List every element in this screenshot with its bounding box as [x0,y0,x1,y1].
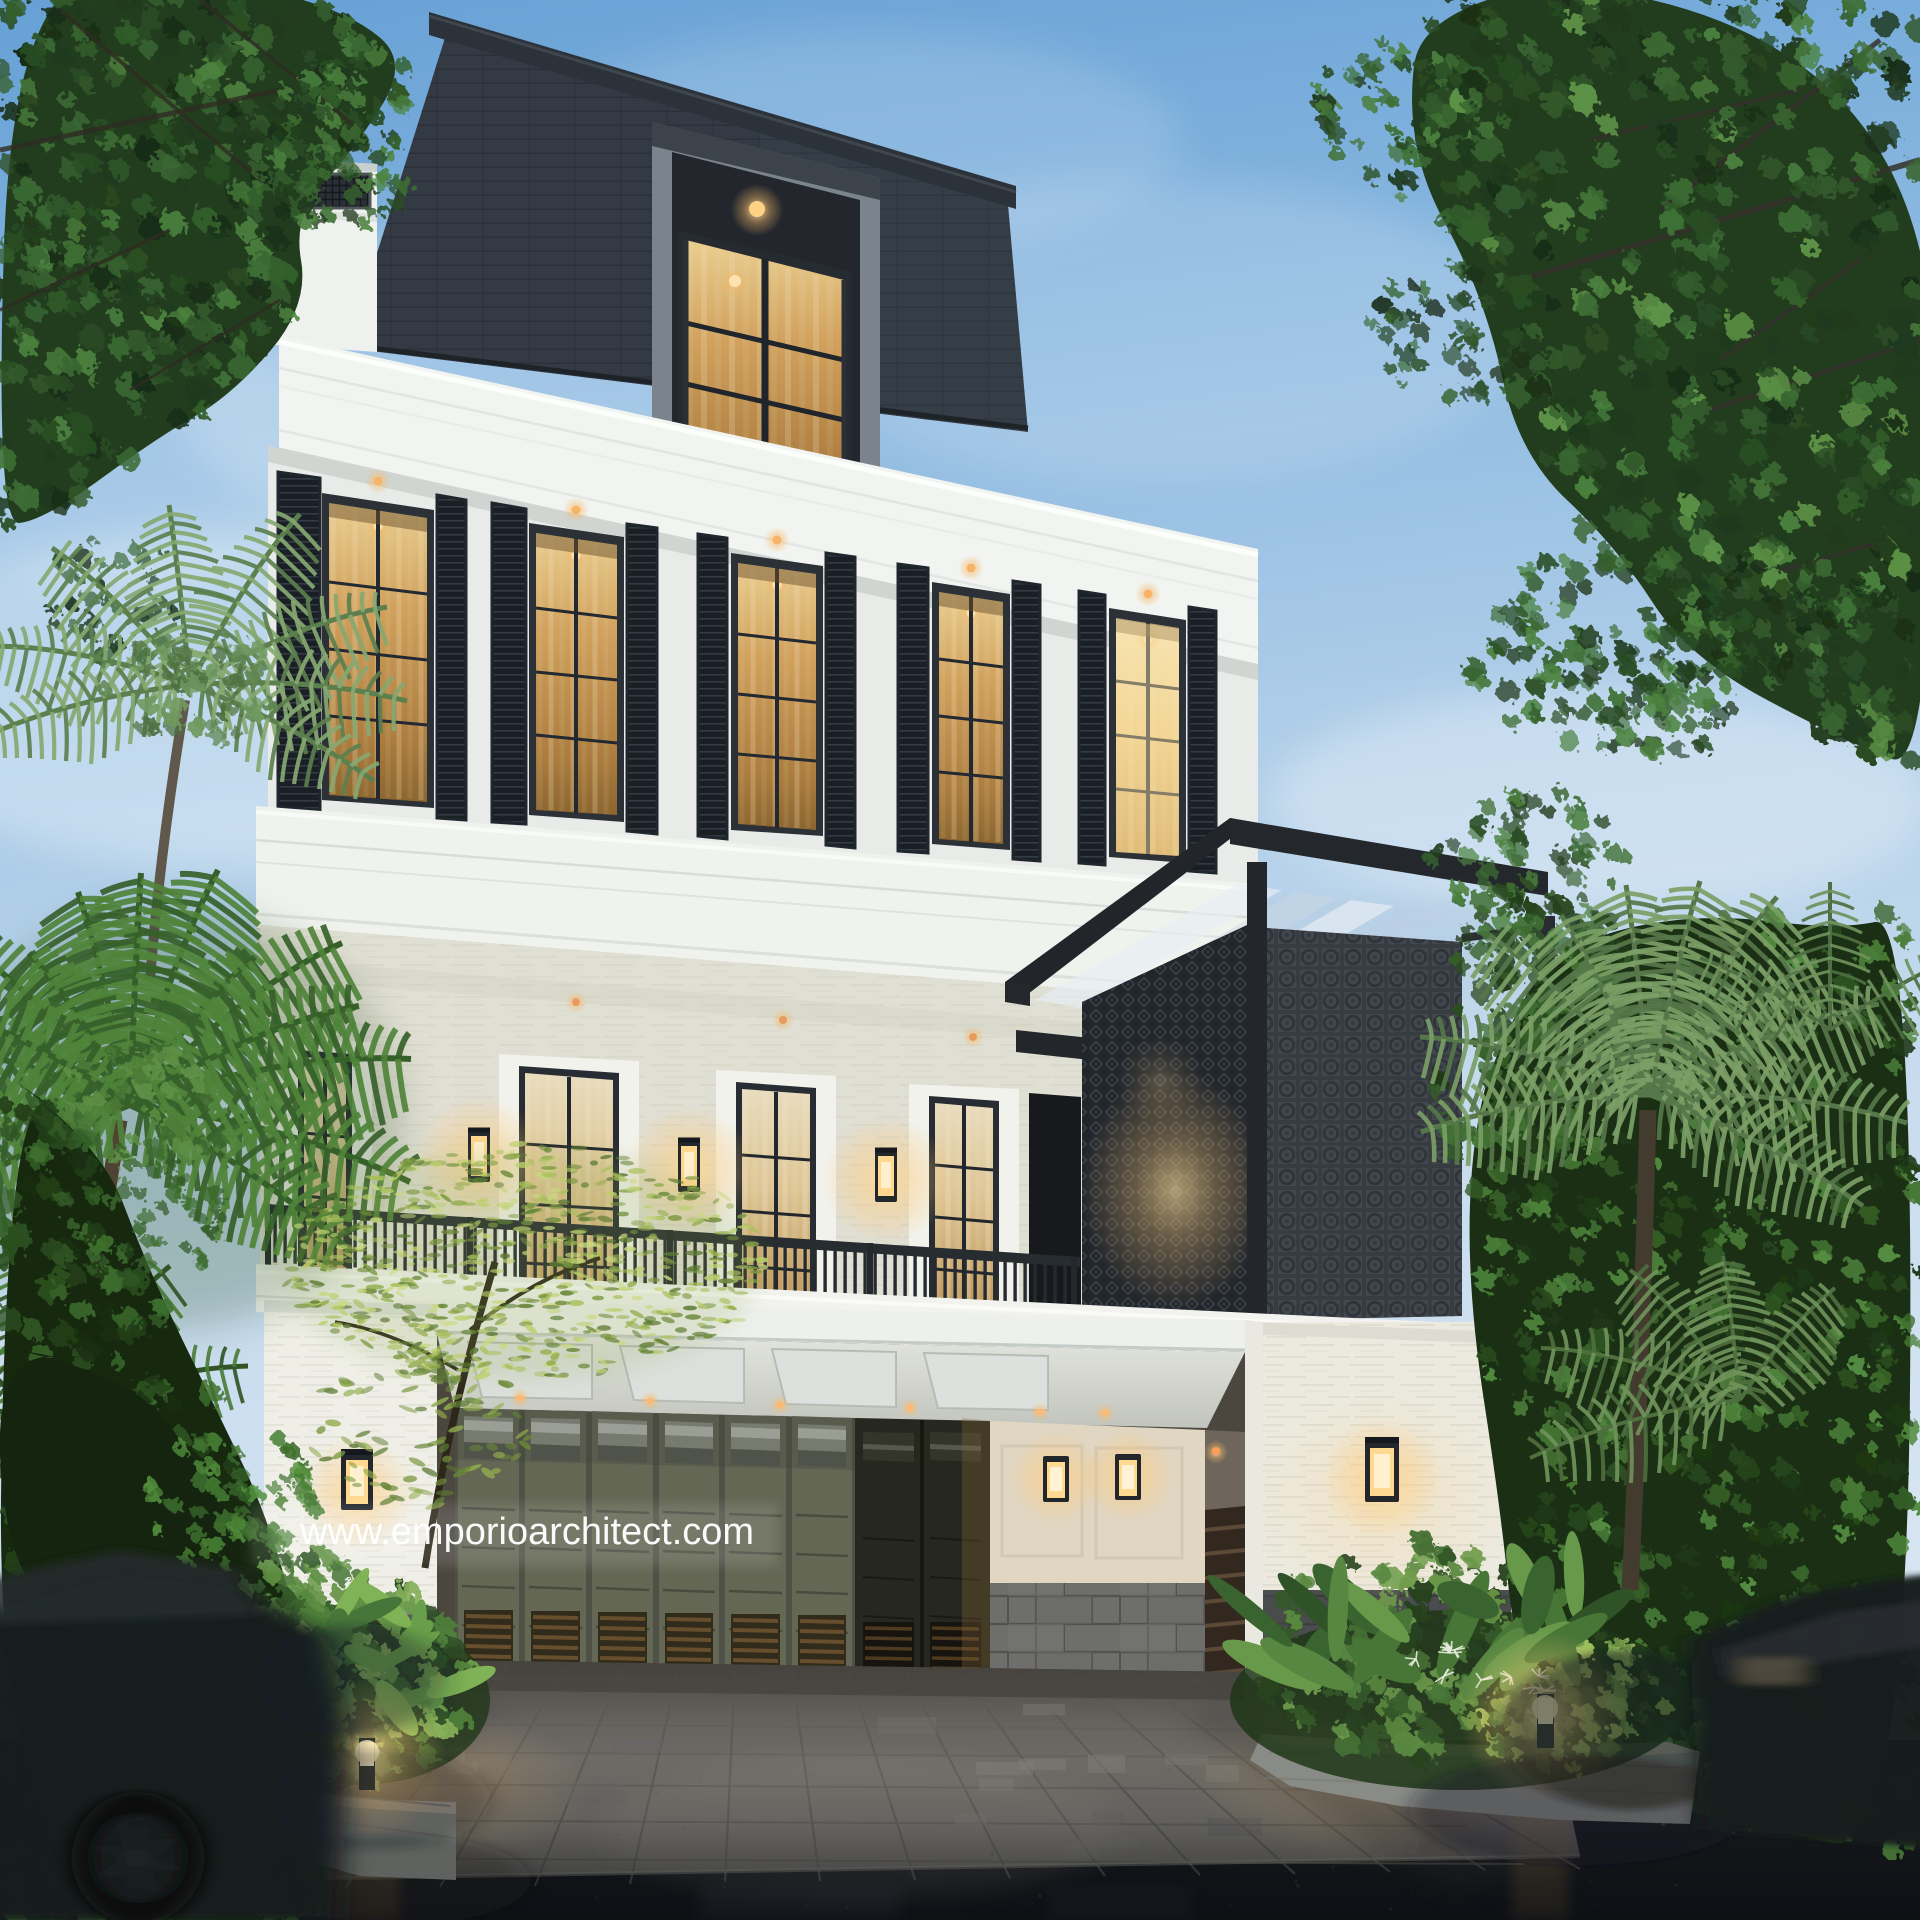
svg-text:www.emporioarchitect.com: www.emporioarchitect.com [299,1511,754,1553]
